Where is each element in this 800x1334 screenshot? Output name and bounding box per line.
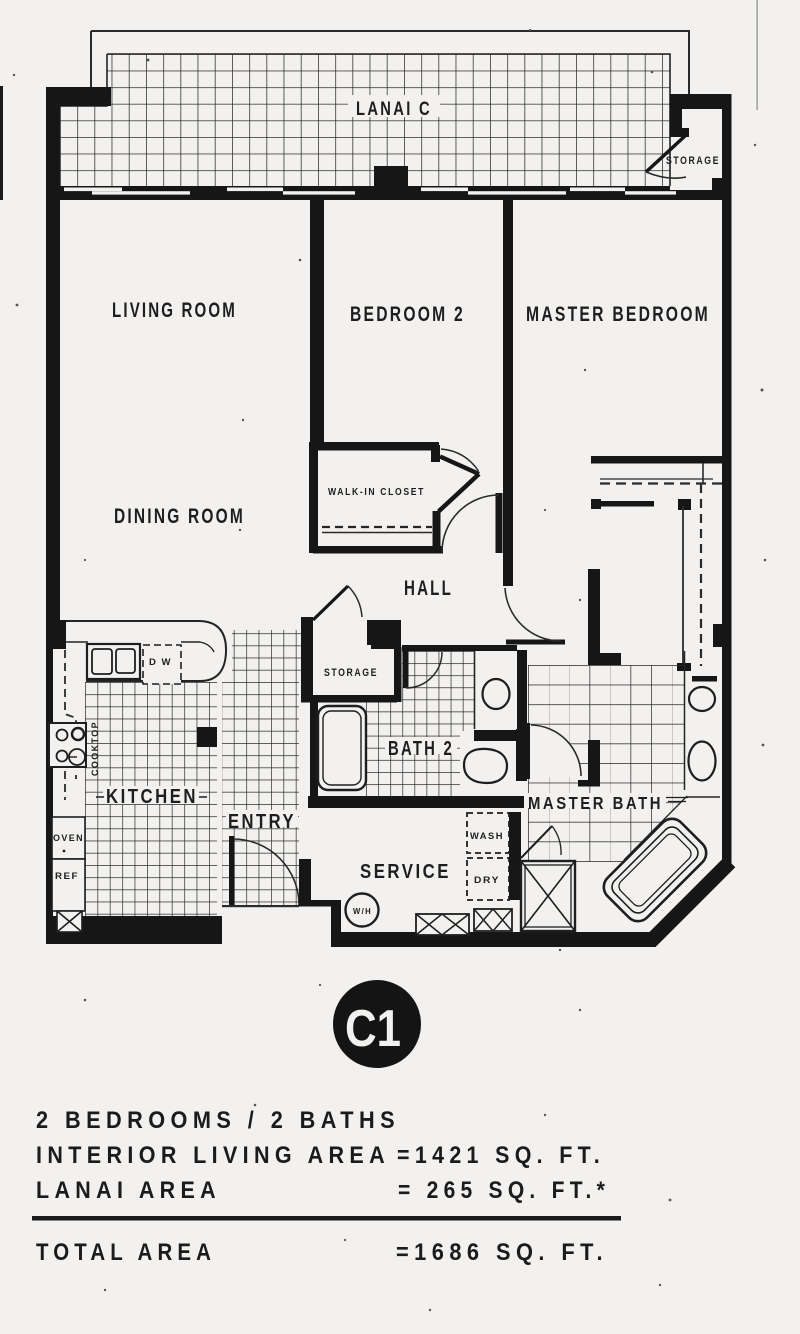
svg-text:LANAI C: LANAI C	[356, 99, 432, 120]
svg-text:DINING ROOM: DINING ROOM	[114, 505, 245, 528]
svg-text:HALL: HALL	[404, 577, 453, 600]
svg-text:LANAI AREA: LANAI AREA	[36, 1177, 221, 1204]
svg-text:COOKTOP: COOKTOP	[90, 721, 101, 776]
svg-text:KITCHEN: KITCHEN	[106, 786, 198, 808]
svg-text:STORAGE: STORAGE	[666, 155, 720, 167]
svg-text:TOTAL AREA: TOTAL AREA	[36, 1239, 216, 1266]
svg-text:2 BEDROOMS / 2 BATHS: 2 BEDROOMS / 2 BATHS	[36, 1107, 400, 1134]
svg-text:WALK-IN CLOSET: WALK-IN CLOSET	[328, 486, 425, 498]
svg-text:BATH 2: BATH 2	[388, 738, 454, 760]
svg-text:BEDROOM 2: BEDROOM 2	[350, 303, 465, 326]
svg-text:W/H: W/H	[353, 906, 372, 916]
svg-text:LIVING ROOM: LIVING ROOM	[112, 299, 237, 322]
svg-text:DRY: DRY	[474, 875, 500, 886]
svg-text:OVEN: OVEN	[53, 833, 84, 844]
svg-text:ENTRY: ENTRY	[228, 811, 296, 833]
svg-text:C1: C1	[345, 1000, 401, 1058]
svg-text:SERVICE: SERVICE	[360, 861, 451, 883]
svg-text:=1421 SQ. FT.: =1421 SQ. FT.	[397, 1142, 605, 1169]
svg-text:=1686 SQ. FT.: =1686 SQ. FT.	[396, 1239, 608, 1266]
svg-text:D W: D W	[149, 657, 172, 668]
svg-text:MASTER BEDROOM: MASTER BEDROOM	[526, 303, 710, 326]
svg-text:STORAGE: STORAGE	[324, 667, 378, 679]
svg-text:REF: REF	[55, 871, 79, 882]
svg-text:MASTER BATH: MASTER BATH	[528, 793, 663, 813]
svg-text:= 265 SQ. FT.*: = 265 SQ. FT.*	[398, 1177, 610, 1204]
svg-text:INTERIOR LIVING AREA: INTERIOR LIVING AREA	[36, 1142, 390, 1169]
svg-text:WASH: WASH	[470, 831, 504, 842]
